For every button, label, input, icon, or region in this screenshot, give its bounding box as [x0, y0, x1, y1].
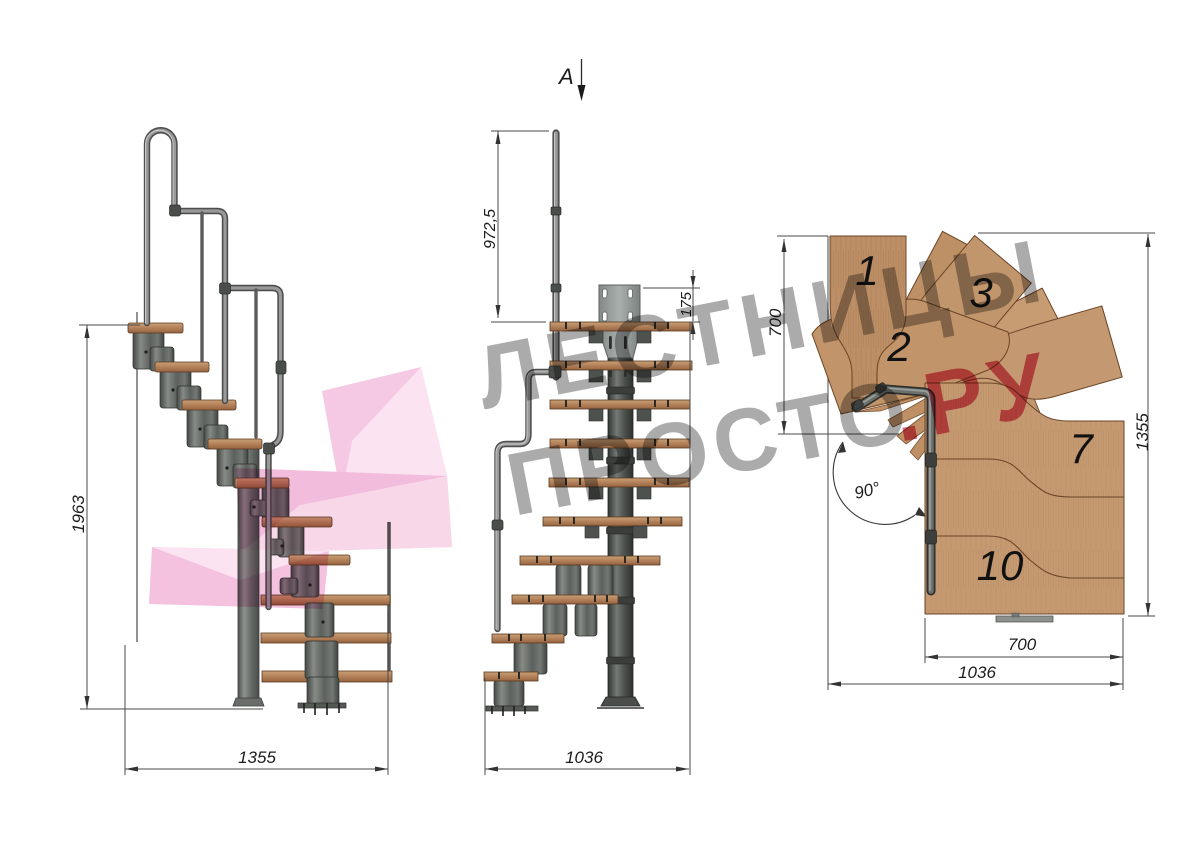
svg-text:10: 10 — [977, 542, 1024, 589]
svg-text:1963: 1963 — [69, 495, 88, 533]
svg-text:1355: 1355 — [238, 748, 276, 767]
svg-text:700: 700 — [1008, 635, 1037, 654]
svg-text:972,5: 972,5 — [482, 209, 499, 249]
svg-text:1036: 1036 — [565, 748, 603, 767]
svg-text:1355: 1355 — [1133, 413, 1152, 451]
svg-text:7: 7 — [1069, 425, 1094, 472]
svg-text:A: A — [557, 64, 574, 89]
svg-text:1036: 1036 — [958, 663, 996, 682]
